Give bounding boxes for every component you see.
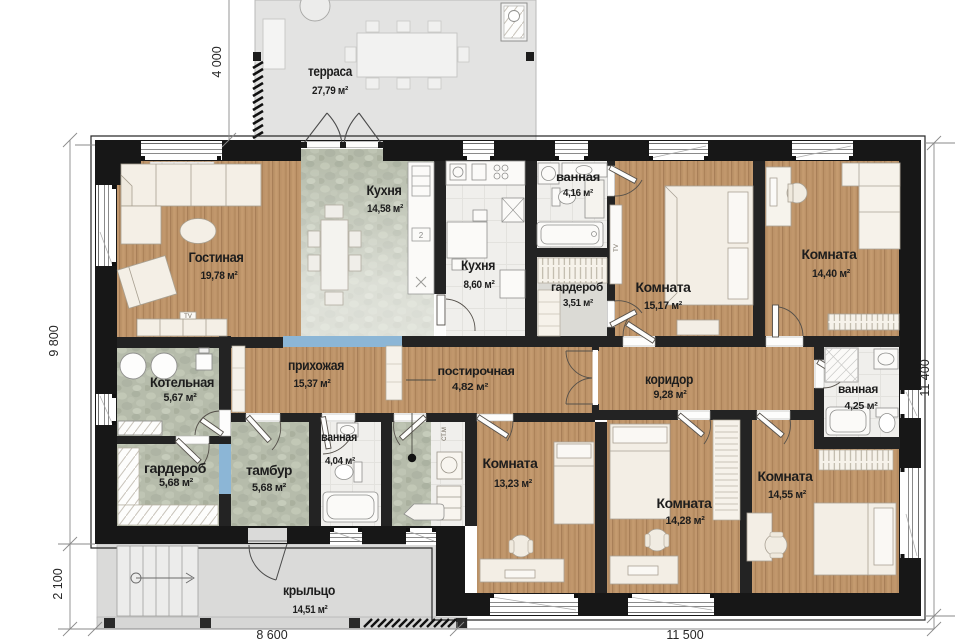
svg-text:3,51 м²: 3,51 м²	[563, 298, 594, 309]
svg-text:Кухня: Кухня	[367, 183, 402, 198]
svg-text:коридор: коридор	[645, 372, 693, 387]
svg-text:14,55 м²: 14,55 м²	[768, 489, 807, 501]
svg-text:15,37 м²: 15,37 м²	[294, 378, 332, 390]
svg-text:19,78 м²: 19,78 м²	[201, 270, 239, 282]
svg-text:Комната: Комната	[657, 496, 713, 511]
svg-text:14,28 м²: 14,28 м²	[666, 515, 706, 527]
svg-text:14,40 м²: 14,40 м²	[812, 268, 851, 280]
svg-text:Котельная: Котельная	[150, 375, 214, 390]
svg-text:8 600: 8 600	[256, 628, 287, 640]
svg-text:ванная: ванная	[321, 432, 357, 444]
svg-text:Комната: Комната	[483, 456, 539, 471]
svg-text:9,28 м²: 9,28 м²	[654, 389, 688, 401]
svg-text:14,58 м²: 14,58 м²	[367, 203, 404, 215]
svg-text:Комната: Комната	[636, 280, 692, 295]
svg-text:2: 2	[419, 231, 424, 240]
svg-text:ванная: ванная	[556, 172, 600, 184]
svg-text:СТ.М: СТ.М	[442, 427, 448, 441]
svg-text:14,51 м²: 14,51 м²	[293, 604, 329, 616]
svg-text:5,68 м²: 5,68 м²	[159, 477, 194, 489]
svg-text:4,04 м²: 4,04 м²	[325, 456, 356, 467]
svg-text:постирочная: постирочная	[438, 366, 515, 378]
svg-text:Комната: Комната	[758, 469, 814, 484]
svg-text:9 800: 9 800	[47, 325, 61, 356]
svg-text:гардероб: гардероб	[144, 461, 206, 476]
svg-text:11 500: 11 500	[666, 628, 703, 640]
svg-text:тамбур: тамбур	[246, 463, 292, 478]
svg-text:4 000: 4 000	[210, 46, 224, 77]
svg-text:8,60 м²: 8,60 м²	[464, 279, 496, 291]
svg-text:прихожая: прихожая	[288, 358, 344, 373]
svg-text:крыльцо: крыльцо	[283, 583, 335, 598]
svg-text:2 100: 2 100	[51, 568, 65, 599]
svg-text:27,79 м²: 27,79 м²	[312, 85, 349, 97]
svg-text:TV: TV	[184, 314, 192, 320]
svg-text:4,82 м²: 4,82 м²	[452, 382, 489, 393]
svg-text:15,17 м²: 15,17 м²	[644, 300, 683, 312]
svg-text:5,67 м²: 5,67 м²	[164, 392, 198, 404]
svg-text:ванная: ванная	[838, 384, 878, 396]
svg-text:Гостиная: Гостиная	[189, 250, 244, 265]
svg-text:4,25 м²: 4,25 м²	[845, 401, 879, 412]
svg-text:терраса: терраса	[308, 64, 353, 79]
svg-text:11 400: 11 400	[918, 359, 932, 396]
svg-text:4,16 м²: 4,16 м²	[563, 188, 594, 199]
svg-text:Комната: Комната	[802, 247, 858, 262]
svg-text:Кухня: Кухня	[461, 258, 495, 273]
svg-text:5,68 м²: 5,68 м²	[252, 482, 287, 494]
svg-text:13,23 м²: 13,23 м²	[494, 478, 533, 490]
svg-text:TV: TV	[614, 244, 620, 252]
svg-text:гардероб: гардероб	[551, 282, 603, 294]
